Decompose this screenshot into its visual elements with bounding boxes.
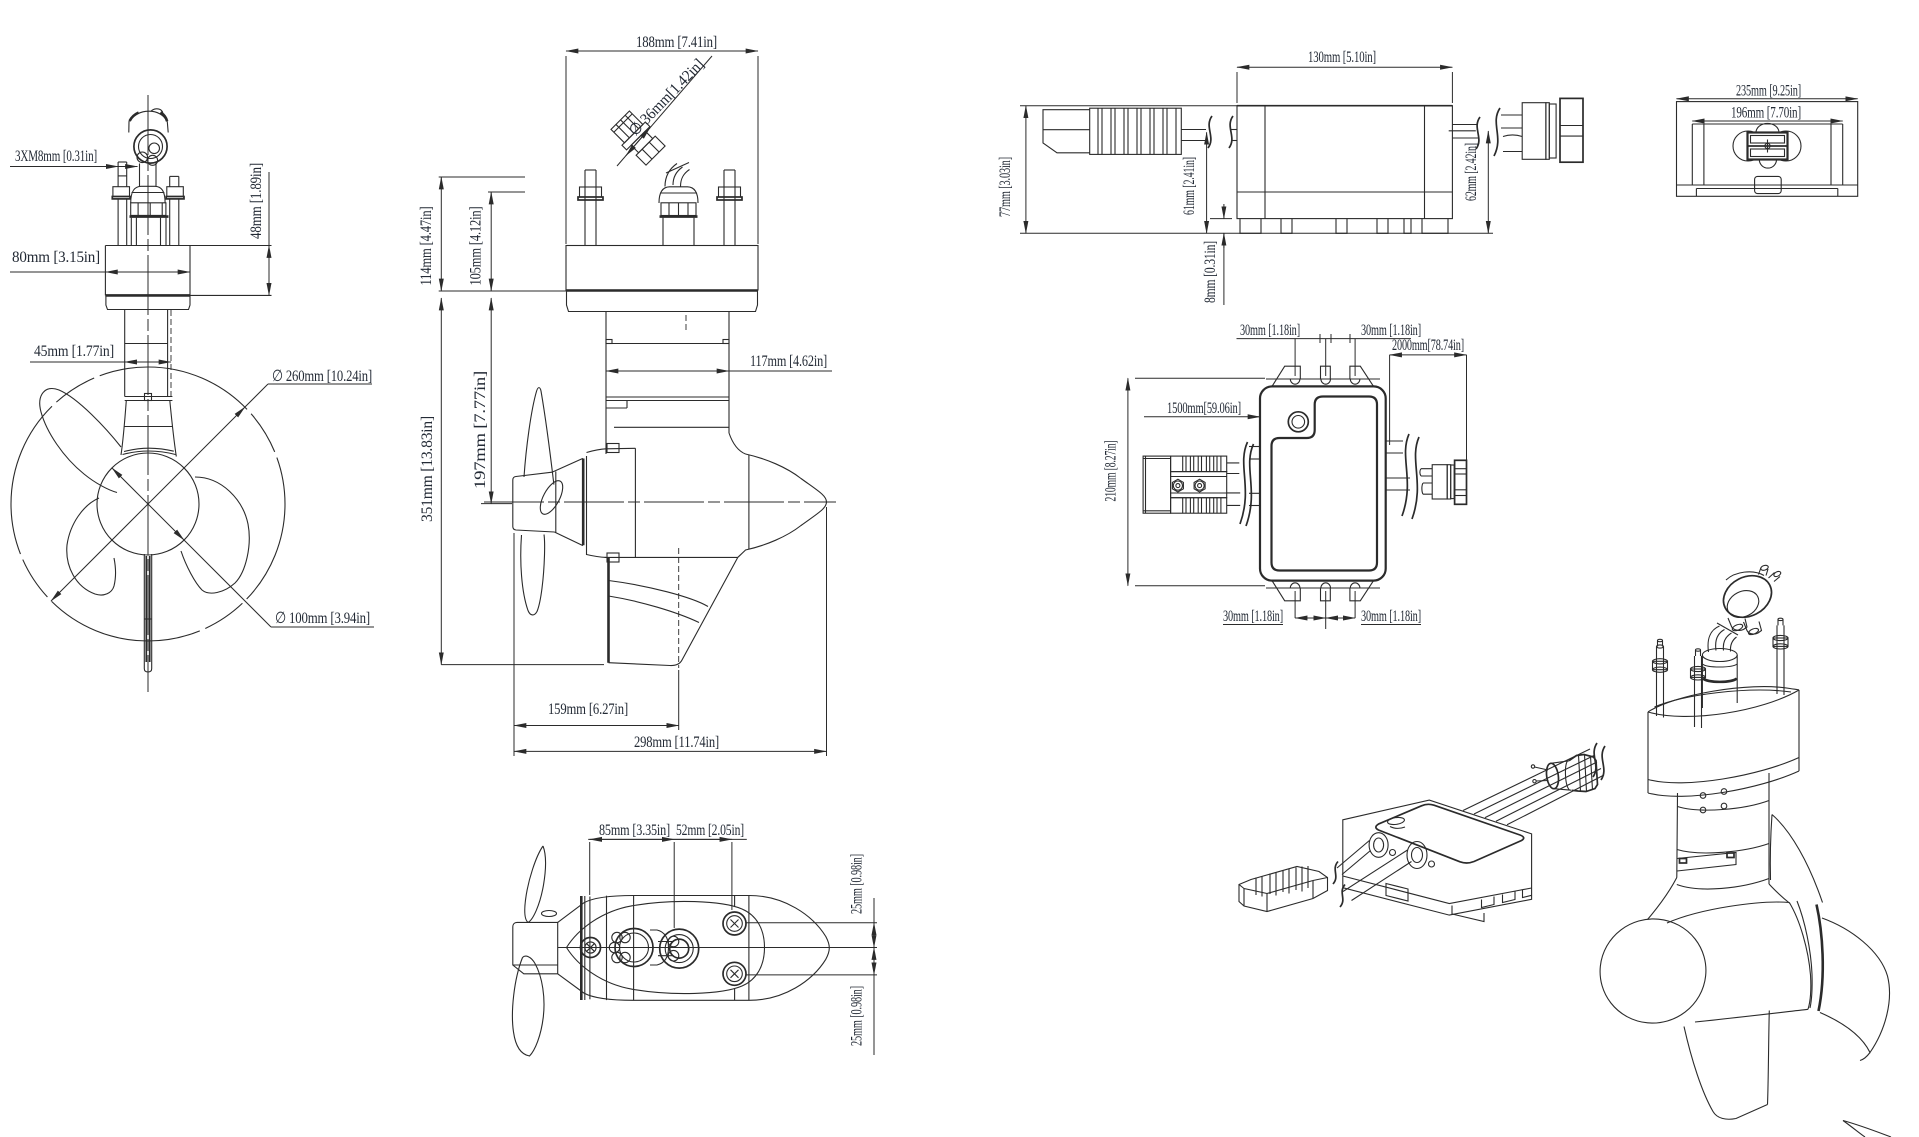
svg-text:197mm [7.77in]: 197mm [7.77in] (472, 371, 489, 489)
svg-text:45mm [1.77in]: 45mm [1.77in] (34, 343, 114, 360)
svg-text:48mm [1.89in]: 48mm [1.89in] (248, 163, 265, 239)
svg-text:188mm [7.41in]: 188mm [7.41in] (636, 34, 717, 51)
svg-text:105mm [4.12in]: 105mm [4.12in] (468, 207, 485, 286)
svg-text:1500mm[59.06in]: 1500mm[59.06in] (1167, 400, 1241, 417)
svg-text:77mm [3.03in]: 77mm [3.03in] (997, 157, 1014, 217)
svg-text:235mm [9.25in]: 235mm [9.25in] (1736, 83, 1801, 100)
svg-text:196mm [7.70in]: 196mm [7.70in] (1731, 105, 1801, 122)
svg-text:52mm [2.05in]: 52mm [2.05in] (676, 822, 744, 839)
svg-text:298mm [11.74in]: 298mm [11.74in] (634, 734, 719, 751)
svg-text:25mm [0.98in]: 25mm [0.98in] (849, 854, 866, 914)
svg-text:130mm [5.10in]: 130mm [5.10in] (1308, 49, 1376, 66)
svg-text:80mm [3.15in]: 80mm [3.15in] (12, 249, 100, 266)
svg-text:∅ 260mm [10.24in]: ∅ 260mm [10.24in] (272, 368, 372, 385)
svg-text:210mm [8.27in]: 210mm [8.27in] (1103, 441, 1120, 502)
svg-text:25mm [0.98in]: 25mm [0.98in] (849, 986, 866, 1046)
svg-text:85mm [3.35in]: 85mm [3.35in] (599, 822, 670, 839)
svg-text:8mm [0.31in]: 8mm [0.31in] (1202, 241, 1219, 303)
svg-text:∅ 100mm [3.94in]: ∅ 100mm [3.94in] (275, 610, 370, 627)
svg-text:2000mm[78.74in]: 2000mm[78.74in] (1392, 337, 1464, 354)
svg-text:30mm [1.18in]: 30mm [1.18in] (1240, 322, 1300, 339)
svg-text:62mm [2.42in]: 62mm [2.42in] (1463, 143, 1480, 201)
svg-text:30mm [1.18in]: 30mm [1.18in] (1223, 608, 1283, 625)
svg-text:159mm [6.27in]: 159mm [6.27in] (548, 701, 628, 718)
svg-text:30mm [1.18in]: 30mm [1.18in] (1361, 608, 1421, 625)
svg-text:3XM8mm [0.31in]: 3XM8mm [0.31in] (15, 148, 97, 165)
svg-text:117mm [4.62in]: 117mm [4.62in] (750, 353, 827, 370)
svg-text:61mm [2.41in]: 61mm [2.41in] (1181, 157, 1198, 215)
svg-text:351mm [13.83in]: 351mm [13.83in] (419, 416, 436, 522)
svg-text:114mm [4.47in]: 114mm [4.47in] (418, 207, 435, 286)
